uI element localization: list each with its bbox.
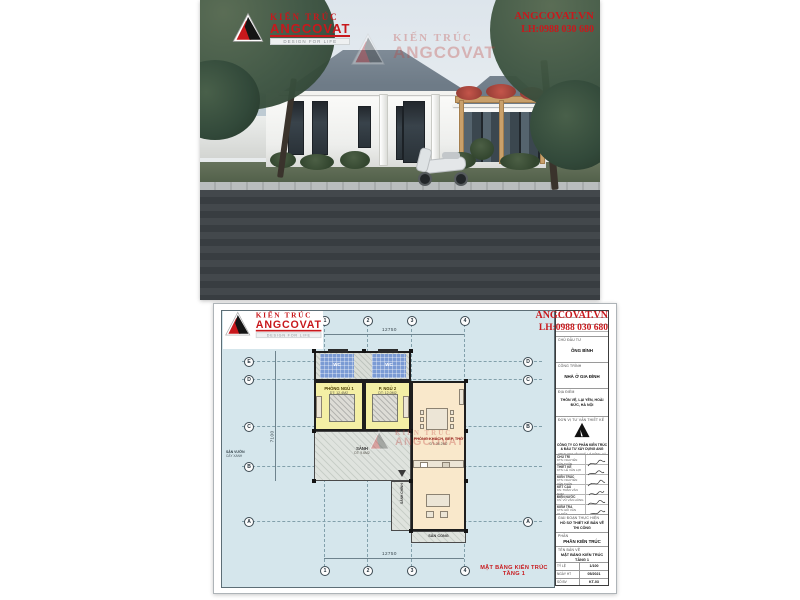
grid-bubble-right-2: C — [523, 375, 533, 385]
living-room-label: PHÒNG KHÁCH, BẾP, THỜ DT: 36.2M2 — [413, 437, 464, 446]
dining-chair-6 — [450, 424, 454, 429]
scale-row: TỶ LỆ 1/100 — [556, 563, 608, 571]
yard-note-line2: CÂY XANH — [226, 454, 245, 458]
paved-driveway — [200, 190, 600, 300]
drawing-cell: TÊN BẢN VẼ MẶT BẰNG KIẾN TRÚC TẦNG 1 — [556, 547, 608, 563]
wardrobe-2 — [403, 396, 409, 418]
room-wc2: WC — [372, 354, 406, 378]
bed-1 — [329, 394, 355, 422]
dining-chair-1 — [420, 410, 424, 415]
signature-scribble — [586, 485, 606, 494]
location-label: ĐỊA ĐIỂM — [556, 389, 608, 394]
terrace-hall — [314, 431, 411, 481]
number-row: SỐ BV KT-03 — [556, 579, 608, 585]
project-cell: CÔNG TRÌNH NHÀ Ở GIA ĐÌNH — [556, 363, 608, 389]
grid-bubble-bottom-3: 3 — [407, 566, 417, 576]
project-value: NHÀ Ở GIA ĐÌNH — [556, 373, 608, 381]
stage-cell: GIAI ĐOẠN THỰC HIỆN HỒ SƠ THIẾT KẾ BẢN V… — [556, 515, 608, 533]
category-cell: PHẦN PHẦN KIẾN TRÚC — [556, 533, 608, 547]
logo-triangle-icon — [230, 12, 266, 48]
shrub-3 — [340, 151, 370, 169]
altar-cabinet — [459, 389, 464, 405]
contact-website: ANGCOVAT.VN — [500, 10, 594, 24]
porch-name: SÂN CỔNG — [412, 534, 465, 538]
sheet-logo-tagline: DESIGN FOR LIFE — [256, 332, 322, 338]
date-row: NGÀY HT 05/2021 — [556, 571, 608, 579]
project-label: CÔNG TRÌNH — [556, 363, 608, 368]
consultant-logo-icon — [556, 422, 608, 443]
dimension-line-left — [275, 351, 276, 481]
walkway-label: SẢNH CHÍNH — [400, 494, 404, 504]
grid-bubble-bottom-4: 4 — [460, 566, 470, 576]
sheet-contact-website: ANGCOVAT.VN — [502, 310, 608, 323]
sig-name: KTS: LÊ VĂN LỢI — [557, 469, 584, 473]
contact-hotline: LH:0988 030 680 — [500, 24, 594, 37]
bed-2 — [372, 394, 398, 422]
company-logo: KIẾN TRÚC ANGCOVAT DESIGN FOR LIFE — [230, 12, 350, 48]
scooter — [416, 146, 472, 190]
room-wc1: WC — [320, 354, 354, 378]
signature-row: KIỂM TRAKTS: ĐỖ VĂN QUYẾT — [556, 505, 608, 515]
sheet-logo-box: KIẾN TRÚC ANGCOVAT DESIGN FOR LIFE — [223, 311, 323, 349]
scale-value: 1/100 — [580, 563, 608, 570]
company-line2: & ĐẦU TƯ XÂY DỰNG ANG — [556, 447, 608, 451]
garden-bonsai — [470, 138, 494, 160]
scooter-wheel-rear — [454, 172, 468, 186]
grid-bubble-left-4: B — [244, 462, 254, 472]
location-value: THÔN VỆ, LẠI YÊN, HOÀI ĐỨC, HÀ NỘI — [556, 397, 608, 408]
wardrobe-1 — [316, 396, 322, 418]
consultant-cell: ĐƠN VỊ TƯ VẤN THIẾT KẾ CÔNG TY CỔ PHẦN K… — [556, 417, 608, 455]
grid-bubble-left-2: D — [244, 375, 254, 385]
door-sidelight — [396, 106, 403, 160]
kitchen-hob — [442, 462, 450, 468]
flower-vine-2 — [486, 84, 516, 99]
signature-row: ĐIỆN NƯỚCKS: VŨ VĂN HÙNG — [556, 495, 608, 505]
column — [464, 529, 468, 533]
location-cell: ĐỊA ĐIỂM THÔN VỆ, LẠI YÊN, HOÀI ĐỨC, HÀ … — [556, 389, 608, 417]
column — [409, 529, 413, 533]
signature-scribble — [586, 495, 606, 504]
dining-chair-5 — [450, 417, 454, 422]
sheet-logo-name: ANGCOVAT — [256, 319, 322, 331]
column — [464, 479, 468, 483]
walkway: SẢNH CHÍNH — [391, 481, 411, 531]
scale-label: TỶ LỆ — [556, 563, 580, 570]
signature-row: THIẾT KẾKTS: LÊ VĂN LỢI — [556, 465, 608, 475]
dimension-line-top — [324, 334, 464, 335]
sofa-main — [426, 494, 450, 507]
column — [464, 379, 468, 383]
grid-bubble-left-5: A — [244, 517, 254, 527]
plan-title-text: MẶT BẰNG KIẾN TRÚC TẦNG 1 — [476, 565, 552, 577]
scooter-wheel-front — [418, 172, 432, 186]
dimension-bottom: 12750 — [382, 551, 397, 556]
column — [362, 349, 366, 353]
sofa-stool-2 — [440, 511, 448, 518]
pergola-post-2 — [499, 100, 504, 164]
kitchen-sink — [420, 462, 428, 468]
column — [312, 429, 316, 433]
column — [312, 479, 316, 483]
page: { "branding": { "accent_red": "#c8181c",… — [0, 0, 800, 600]
window-mid — [358, 106, 371, 148]
exterior-render-photo: KIẾN TRÚC ANGCOVAT KIẾN TRÚC ANGCOVAT DE… — [200, 0, 600, 300]
grid-bubble-top-2: 2 — [363, 316, 373, 326]
room-wc2-label: WC — [372, 362, 406, 367]
date-value: 05/2021 — [580, 571, 608, 578]
grid-bubble-right-1: D — [523, 357, 533, 367]
floor-plan-sheet: 1 2 3 4 1 2 3 4 E D C B A D C B A 12750 … — [213, 303, 617, 594]
stage-value: HỒ SƠ THIẾT KẾ BẢN VẼ THI CÔNG — [556, 520, 608, 531]
grid-bubble-right-4: A — [523, 517, 533, 527]
number-value: KT-03 — [580, 579, 608, 585]
entry-porch: SÂN CỔNG — [411, 531, 466, 543]
investor-value: ÔNG BÌNH — [556, 347, 608, 355]
signature-scribble — [586, 475, 606, 484]
meta-rows: TỶ LỆ 1/100 NGÀY HT 05/2021 SỐ BV KT-03 — [556, 563, 608, 585]
grid-bubble-top-3: 3 — [407, 316, 417, 326]
grid-bubble-right-3: B — [523, 422, 533, 432]
column — [464, 429, 468, 433]
number-label: SỐ BV — [556, 579, 580, 585]
dining-chair-3 — [420, 424, 424, 429]
grid-bubble-bottom-1: 1 — [320, 566, 330, 576]
watermark-top-text: KIẾN TRÚC — [393, 32, 496, 44]
investor-cell: CHỦ ĐẦU TƯ ÔNG BÌNH — [556, 337, 608, 363]
sofa-stool-1 — [426, 511, 434, 518]
signature-scribble — [586, 455, 606, 464]
title-block: CHỦ ĐẦU TƯ ÔNG BÌNH CÔNG TRÌNH NHÀ Ở GIA… — [555, 310, 609, 586]
grid-bubble-bottom-2: 2 — [363, 566, 373, 576]
living-area: DT: 36.2M2 — [413, 442, 464, 446]
signature-row: KẾT CẤUKS: TRẦN VĂN NAM — [556, 485, 608, 495]
roof-fascia-main — [279, 91, 471, 95]
scooter-seat — [442, 152, 460, 159]
column — [312, 349, 316, 353]
signature-row: CHỦ TRÌKTS: NGUYỄN VĂN TUẤN — [556, 455, 608, 465]
shrub-2 — [300, 154, 334, 170]
dining-table — [426, 408, 448, 430]
dimension-line-bottom — [324, 558, 464, 559]
entrance-arrow-icon — [398, 470, 406, 477]
hall-label: SẢNH DT: 9.6M2 — [342, 446, 382, 455]
dimension-top: 12750 — [382, 327, 397, 332]
grid-bubble-top-4: 4 — [460, 316, 470, 326]
room-wc1-label: WC — [320, 362, 354, 367]
yard-note: SÂN VƯỜN CÂY XANH — [226, 450, 245, 458]
shrub-5 — [500, 153, 540, 170]
grid-bubble-left-1: E — [244, 357, 254, 367]
signature-row: KIẾN TRÚCKTS: NGUYỄN VĂN TUẤN — [556, 475, 608, 485]
column — [409, 429, 413, 433]
signature-scribble — [586, 465, 606, 474]
signature-scribble — [586, 505, 606, 515]
sheet-logo-triangle-icon — [223, 311, 253, 341]
grid-bubble-left-3: C — [244, 422, 254, 432]
logo-tagline: DESIGN FOR LIFE — [270, 38, 350, 45]
signature-table: CHỦ TRÌKTS: NGUYỄN VĂN TUẤN THIẾT KẾKTS:… — [556, 455, 608, 515]
category-value: PHẦN KIẾN TRÚC — [556, 538, 608, 546]
window-tall-2 — [312, 101, 328, 155]
flower-vine-1 — [456, 86, 482, 100]
sig-name: KS: VŨ VĂN HÙNG — [557, 499, 584, 503]
investor-label: CHỦ ĐẦU TƯ — [556, 337, 608, 342]
sidewalk — [200, 182, 600, 190]
drawing-value: MẶT BẰNG KIẾN TRÚC TẦNG 1 — [556, 552, 608, 563]
dining-chair-2 — [420, 417, 424, 422]
date-label: NGÀY HT — [556, 571, 580, 578]
logo-name: ANGCOVAT — [270, 22, 350, 37]
hall-area: DT: 9.6M2 — [342, 451, 382, 455]
column — [409, 349, 413, 353]
room-living — [411, 381, 466, 531]
contact-block: ANGCOVAT.VN LH:0988 030 680 — [500, 10, 594, 36]
sheet-contact-hotline: LH:0988 030 680 — [502, 323, 608, 335]
sheet-contact-block: ANGCOVAT.VN LH:0988 030 680 — [502, 310, 608, 334]
dining-chair-4 — [450, 410, 454, 415]
dimension-left: 7100 — [269, 431, 274, 443]
column — [409, 479, 413, 483]
wc-top-window-1 — [328, 349, 348, 353]
porch-column-left — [379, 94, 388, 166]
wc-top-window-2 — [378, 349, 398, 353]
